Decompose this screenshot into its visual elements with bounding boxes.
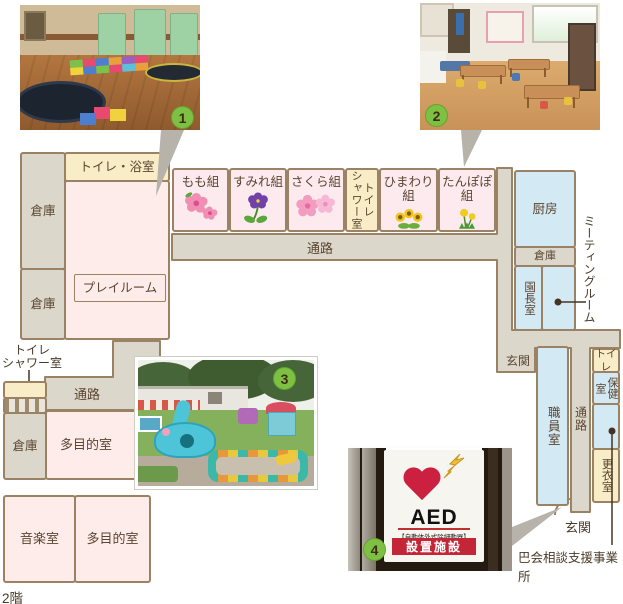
photo2-chair <box>564 97 572 105</box>
aed-small-text-bar <box>398 528 470 530</box>
photo1-door-3 <box>170 13 198 57</box>
aed-banner: 設置施設 <box>392 538 476 555</box>
photo1-mat-red <box>94 107 110 119</box>
photo1-door-2 <box>134 9 166 57</box>
photo3-green-bench <box>135 466 178 482</box>
photo4-badge: 4 <box>363 538 386 561</box>
photo2-chair <box>540 101 548 109</box>
aed-title: AED <box>384 506 484 530</box>
photo3-whale-spot <box>162 428 170 436</box>
photo1-mat-yellow <box>110 109 126 121</box>
photo4-frame-left <box>348 448 360 571</box>
photo2-badge: 2 <box>425 104 448 127</box>
photo1-badge: 1 <box>171 106 194 129</box>
floor-plan-page: 倉庫 倉庫 トイレ・浴室 プレイルーム もも組 すみれ組 さくら組 <box>0 0 623 604</box>
photo2-chair <box>456 79 464 87</box>
photo4-frame-right <box>502 448 512 571</box>
photo3-building-window <box>208 392 222 404</box>
photo2-blue-panel <box>456 13 464 35</box>
photo3-playhouse <box>268 412 296 436</box>
photo4-aed-sign: AED 【自動体外式除細動器】 設置施設 <box>384 450 484 562</box>
photo3-whale-hole <box>180 434 194 448</box>
photo1-pointer <box>156 130 184 196</box>
photo2-chair <box>512 73 520 81</box>
photo3-play-structure <box>238 408 258 424</box>
photo4-reflection <box>488 448 498 571</box>
photo1-trampoline-small <box>145 63 200 82</box>
photo2-pinboard <box>486 11 524 43</box>
photo2-partition <box>568 23 596 91</box>
photo1-mat-blue <box>80 113 96 125</box>
photo3-awning <box>138 400 200 410</box>
photo3-badge: 3 <box>273 367 296 390</box>
photo2-chair <box>478 81 486 89</box>
lightning-bolt-icon <box>438 454 468 484</box>
photo1-window <box>24 11 46 41</box>
photo1-door-1 <box>98 13 126 57</box>
photo2-pointer <box>461 130 482 167</box>
photo4-pointer <box>512 507 562 546</box>
